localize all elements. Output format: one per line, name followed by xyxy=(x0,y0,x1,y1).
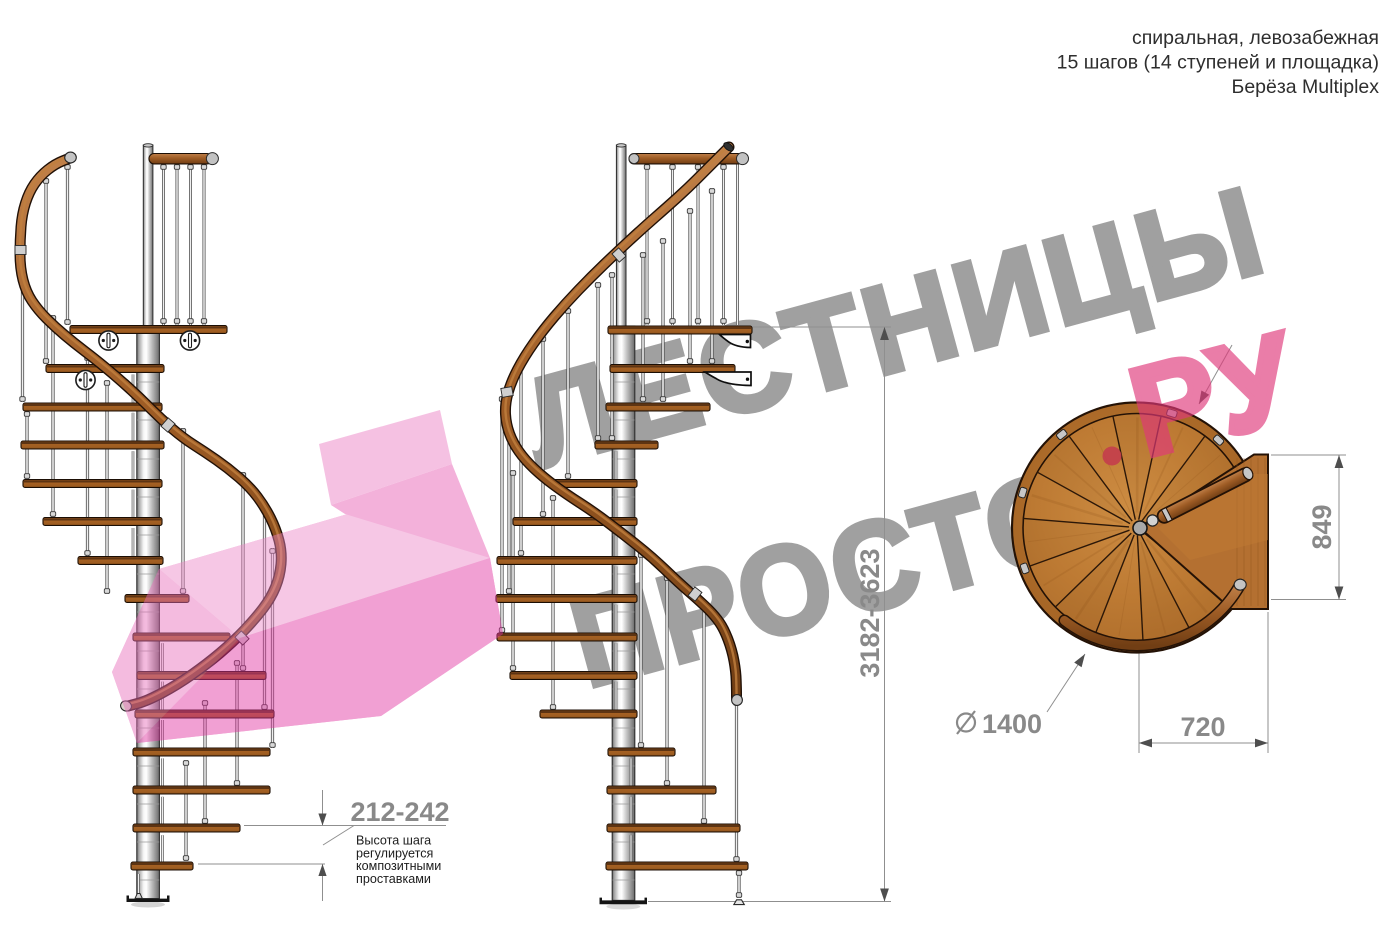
svg-text:849: 849 xyxy=(1307,504,1337,549)
svg-text:спиральная, левозабежная: спиральная, левозабежная xyxy=(1132,27,1379,49)
svg-text:3182-3623: 3182-3623 xyxy=(855,548,885,677)
svg-text:720: 720 xyxy=(1180,712,1225,742)
svg-text:проставками: проставками xyxy=(356,872,431,886)
svg-text:212-242: 212-242 xyxy=(350,797,449,827)
svg-text:1400: 1400 xyxy=(982,709,1042,739)
svg-text:Берёза Multiplex: Берёза Multiplex xyxy=(1232,76,1380,98)
svg-text:15 шагов (14 ступеней и площад: 15 шагов (14 ступеней и площадка) xyxy=(1057,52,1379,74)
